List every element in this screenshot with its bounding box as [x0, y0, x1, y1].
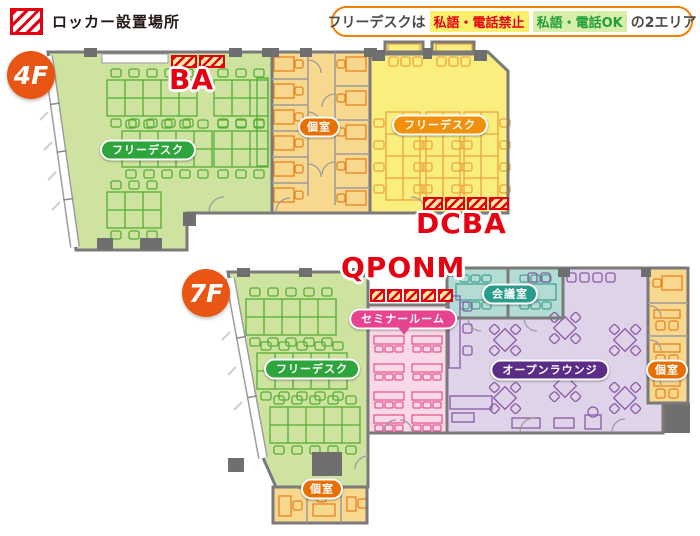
banner-suffix: の2エリア: [631, 12, 697, 32]
seminar-label-tail: [398, 327, 410, 335]
locker-letters-ba: BA: [169, 66, 214, 94]
legend: ロッカー設置場所: [10, 8, 180, 35]
area-label-4f-free-desk-yellow: フリーデスク: [392, 115, 488, 136]
area-label-7f-free-desk: フリーデスク: [264, 359, 360, 380]
area-label-7f-open-lounge: オープンラウンジ: [490, 360, 609, 381]
area-label-4f-free-desk-green: フリーデスク: [100, 140, 196, 161]
banner-prefix: フリーデスクは: [328, 12, 426, 32]
area-label-7f-private-bottom: 個室: [301, 479, 343, 500]
locker-letters-dcba: DCBA: [416, 210, 507, 238]
floor-badge-7f: 7F: [182, 269, 230, 317]
talk-ok-badge: 私語・電話OK: [533, 11, 627, 32]
locker-segment: [370, 289, 385, 302]
area-label-7f-meeting-room: 会議室: [482, 284, 538, 305]
free-desk-banner: フリーデスクは 私語・電話禁止 私語・電話OK の2エリア: [331, 6, 693, 37]
no-talk-badge: 私語・電話禁止: [430, 11, 529, 32]
locker-hatch-icon: [10, 8, 43, 35]
4f-whiteboard: [102, 54, 168, 63]
locker-segment: [387, 289, 402, 302]
locker-strip-7f-top: [370, 289, 453, 302]
floor-badge-4f: 4F: [7, 51, 55, 99]
floor-plan-page: ロッカー設置場所 フリーデスクは 私語・電話禁止 私語・電話OK の2エリア 4…: [0, 0, 700, 536]
locker-segment: [421, 289, 436, 302]
area-label-7f-private-right: 個室: [646, 360, 688, 381]
locker-letters-qponm: QPONM: [341, 254, 465, 282]
locker-segment: [404, 289, 419, 302]
area-label-4f-private-rooms: 個室: [298, 117, 340, 138]
legend-label: ロッカー設置場所: [52, 11, 180, 32]
locker-segment: [438, 289, 453, 302]
